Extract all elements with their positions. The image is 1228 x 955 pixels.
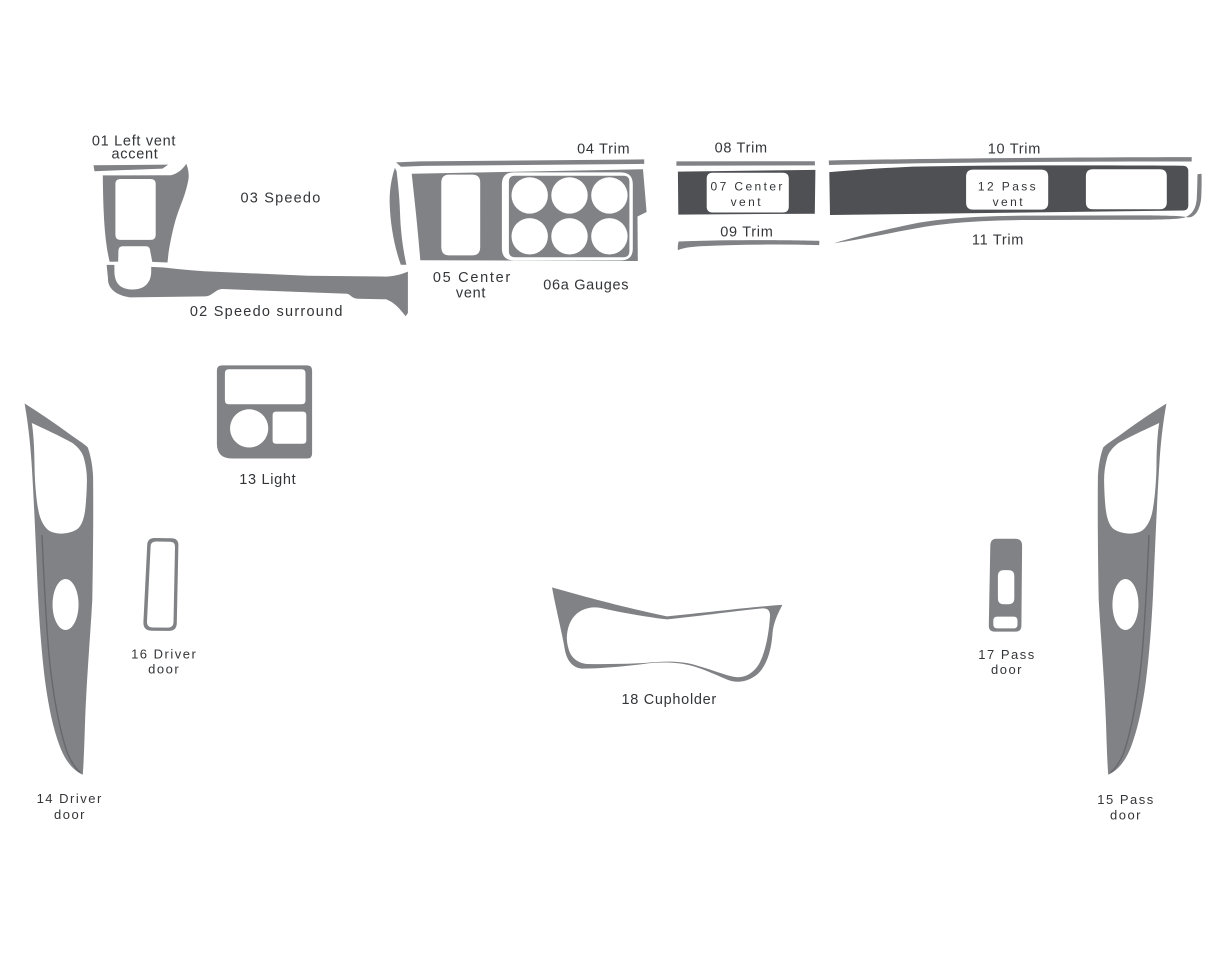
- svg-text:door: door: [991, 662, 1023, 677]
- svg-text:18 Cupholder: 18 Cupholder: [621, 692, 716, 708]
- svg-text:vent: vent: [731, 195, 763, 209]
- svg-text:11 Trim: 11 Trim: [972, 233, 1024, 249]
- svg-text:03 Speedo: 03 Speedo: [241, 191, 322, 207]
- svg-text:09 Trim: 09 Trim: [720, 225, 773, 241]
- svg-text:door: door: [54, 807, 86, 822]
- svg-text:02 Speedo surround: 02 Speedo surround: [190, 304, 344, 320]
- svg-text:10 Trim: 10 Trim: [988, 141, 1041, 157]
- svg-text:door: door: [1110, 808, 1142, 823]
- svg-text:17 Pass: 17 Pass: [978, 647, 1035, 662]
- svg-text:15 Pass: 15 Pass: [1097, 792, 1154, 807]
- svg-text:04 Trim: 04 Trim: [577, 142, 630, 158]
- svg-text:06a Gauges: 06a Gauges: [543, 277, 629, 293]
- svg-text:13 Light: 13 Light: [239, 472, 296, 488]
- svg-text:08 Trim: 08 Trim: [715, 141, 768, 157]
- svg-text:accent: accent: [112, 146, 159, 162]
- svg-text:vent: vent: [993, 195, 1025, 209]
- svg-text:14 Driver: 14 Driver: [37, 791, 103, 806]
- svg-text:07 Center: 07 Center: [711, 179, 785, 193]
- svg-text:vent: vent: [456, 286, 486, 302]
- svg-text:12 Pass: 12 Pass: [978, 179, 1038, 193]
- svg-text:16 Driver: 16 Driver: [131, 646, 197, 661]
- svg-text:door: door: [148, 661, 180, 676]
- svg-text:05 Center: 05 Center: [433, 270, 512, 286]
